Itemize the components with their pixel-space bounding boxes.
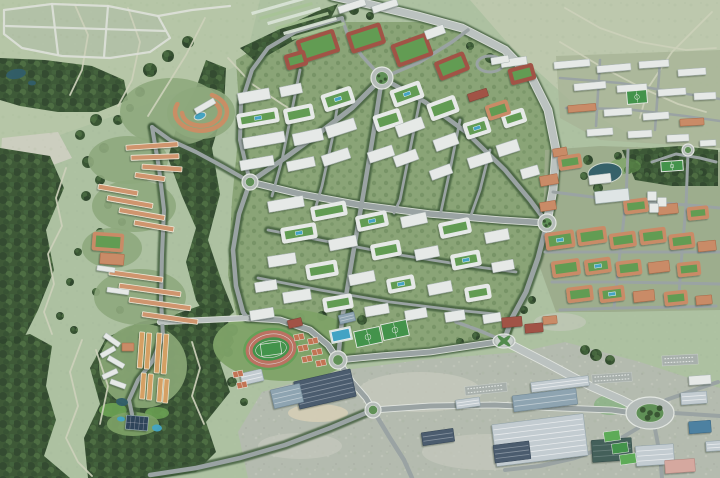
aerial-photomontage [0, 0, 720, 478]
aerial-render [0, 0, 720, 478]
atmosphere-overlay [0, 0, 720, 478]
